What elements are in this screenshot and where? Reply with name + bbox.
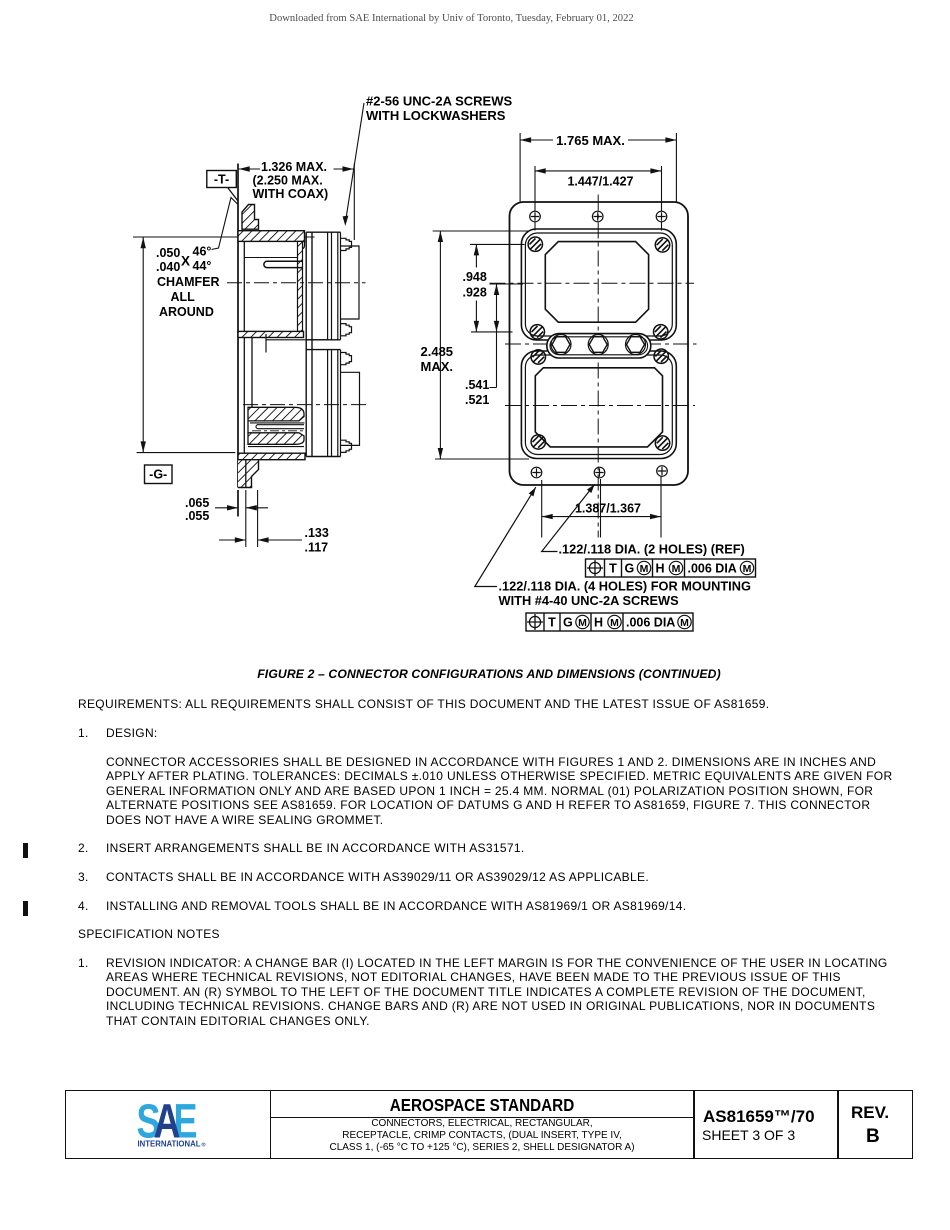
svg-text:G: G (625, 562, 635, 576)
svg-text:T: T (609, 562, 617, 576)
svg-text:2.485: 2.485 (421, 344, 454, 359)
svg-text:1.447/1.427: 1.447/1.427 (567, 174, 633, 188)
svg-text:WITH #4-40 UNC-2A SCREWS: WITH #4-40 UNC-2A SCREWS (499, 593, 680, 608)
svg-text:#2-56 UNC-2A SCREWS: #2-56 UNC-2A SCREWS (366, 94, 512, 109)
svg-text:(2.250 MAX.: (2.250 MAX. (253, 174, 323, 188)
svg-text:®: ® (202, 1142, 206, 1149)
svg-text:M: M (640, 563, 649, 575)
svg-text:INTERNATIONAL: INTERNATIONAL (138, 1140, 201, 1149)
svg-text:1.387/1.367: 1.387/1.367 (575, 502, 641, 516)
svg-text:M: M (743, 563, 752, 575)
svg-text:1.326 MAX.: 1.326 MAX. (261, 160, 327, 174)
svg-text:H: H (656, 562, 665, 576)
svg-text:AROUND: AROUND (159, 305, 214, 319)
svg-text:.122/.118 DIA. (2 HOLES) (REF): .122/.118 DIA. (2 HOLES) (REF) (559, 542, 745, 557)
svg-text:M: M (610, 617, 619, 629)
svg-text:.133: .133 (305, 526, 329, 540)
svg-text:.065: .065 (185, 496, 209, 510)
svg-text:WITH LOCKWASHERS: WITH LOCKWASHERS (366, 108, 506, 123)
svg-text:.117: .117 (305, 541, 329, 555)
svg-text:.006 DIA: .006 DIA (688, 562, 737, 576)
svg-text:.541: .541 (465, 378, 489, 392)
svg-text:.050: .050 (156, 246, 180, 260)
svg-text:WITH COAX): WITH COAX) (253, 187, 329, 201)
svg-text:T: T (548, 616, 556, 630)
svg-text:H: H (594, 616, 603, 630)
svg-text:-G-: -G- (149, 468, 167, 482)
svg-text:1.765 MAX.: 1.765 MAX. (556, 133, 625, 148)
svg-text:X: X (181, 254, 190, 269)
svg-text:M: M (680, 617, 689, 629)
svg-text:ALL: ALL (171, 290, 196, 304)
svg-text:M: M (578, 617, 587, 629)
svg-text:46°: 46° (193, 245, 212, 259)
svg-text:CHAMFER: CHAMFER (157, 275, 220, 289)
svg-text:G: G (563, 616, 573, 630)
svg-text:.055: .055 (185, 509, 209, 523)
svg-text:MAX.: MAX. (421, 359, 454, 374)
svg-text:M: M (672, 563, 681, 575)
svg-text:.122/.118 DIA. (4 HOLES) FOR M: .122/.118 DIA. (4 HOLES) FOR MOUNTING (499, 579, 751, 594)
svg-text:.948: .948 (463, 270, 487, 284)
svg-text:.928: .928 (463, 286, 487, 300)
svg-text:.006 DIA: .006 DIA (626, 616, 675, 630)
svg-text:44°: 44° (193, 259, 212, 273)
svg-text:.521: .521 (465, 393, 489, 407)
svg-text:.040: .040 (156, 260, 180, 274)
svg-text:-T-: -T- (214, 173, 229, 187)
